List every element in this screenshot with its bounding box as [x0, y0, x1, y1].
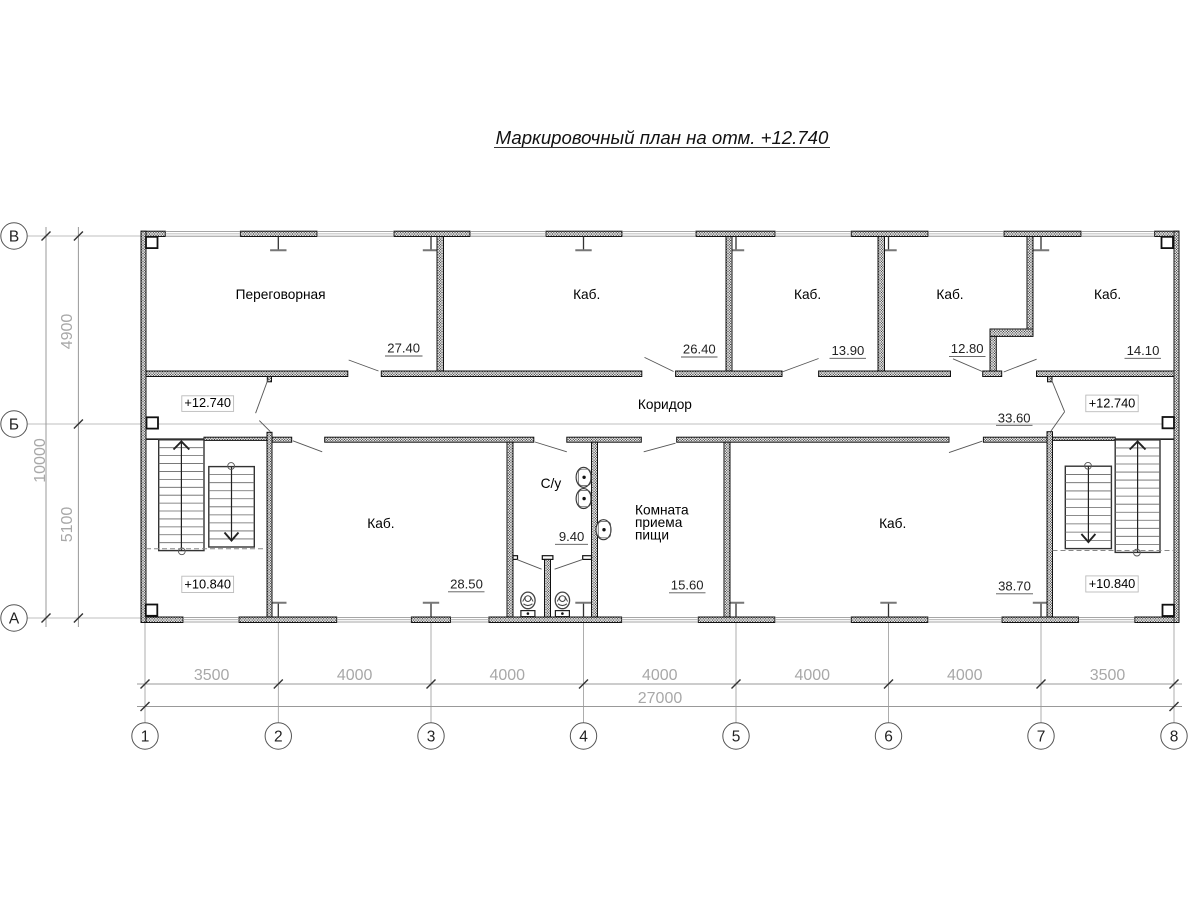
svg-text:В: В	[9, 229, 19, 246]
svg-text:4000: 4000	[642, 667, 678, 684]
svg-text:27.40: 27.40	[387, 341, 420, 356]
svg-text:14.10: 14.10	[1127, 343, 1160, 358]
svg-text:13.90: 13.90	[832, 343, 865, 358]
svg-text:2: 2	[274, 729, 283, 746]
svg-text:15.60: 15.60	[671, 577, 704, 592]
svg-text:3500: 3500	[1090, 667, 1126, 684]
svg-text:3: 3	[427, 729, 436, 746]
svg-text:Каб.: Каб.	[1094, 287, 1121, 302]
svg-text:7: 7	[1037, 729, 1046, 746]
svg-text:Маркировочный план на отм. +12: Маркировочный план на отм. +12.740	[496, 127, 829, 148]
svg-text:+12.740: +12.740	[184, 395, 231, 410]
svg-text:+12.740: +12.740	[1089, 396, 1136, 411]
svg-text:5: 5	[732, 729, 741, 746]
svg-text:Каб.: Каб.	[573, 287, 600, 302]
svg-text:Переговорная: Переговорная	[236, 287, 326, 302]
svg-text:38.70: 38.70	[998, 578, 1031, 593]
svg-text:4: 4	[579, 729, 588, 746]
svg-text:Коридор: Коридор	[638, 397, 692, 412]
svg-text:Каб.: Каб.	[794, 287, 821, 302]
svg-text:5100: 5100	[59, 507, 76, 543]
svg-text:33.60: 33.60	[998, 410, 1031, 425]
svg-text:3500: 3500	[194, 667, 230, 684]
svg-text:10000: 10000	[32, 438, 49, 483]
svg-text:4000: 4000	[947, 667, 983, 684]
svg-text:Каб.: Каб.	[367, 516, 394, 531]
svg-text:+10.840: +10.840	[1089, 576, 1136, 591]
svg-text:А: А	[9, 611, 20, 628]
svg-text:8: 8	[1170, 729, 1179, 746]
svg-text:26.40: 26.40	[683, 342, 716, 357]
svg-text:4000: 4000	[337, 667, 373, 684]
svg-text:Б: Б	[9, 417, 19, 434]
svg-text:4900: 4900	[59, 314, 76, 350]
svg-text:Каб.: Каб.	[879, 516, 906, 531]
svg-text:28.50: 28.50	[450, 577, 483, 592]
svg-text:6: 6	[884, 729, 893, 746]
svg-text:С/у: С/у	[541, 476, 562, 491]
svg-text:9.40: 9.40	[559, 529, 584, 544]
svg-text:+10.840: +10.840	[184, 576, 231, 591]
svg-text:пищи: пищи	[635, 528, 669, 543]
svg-text:12.80: 12.80	[951, 341, 984, 356]
svg-text:Каб.: Каб.	[936, 287, 963, 302]
svg-text:4000: 4000	[794, 667, 830, 684]
svg-text:27000: 27000	[638, 690, 683, 707]
svg-text:1: 1	[141, 729, 150, 746]
svg-text:4000: 4000	[489, 667, 525, 684]
